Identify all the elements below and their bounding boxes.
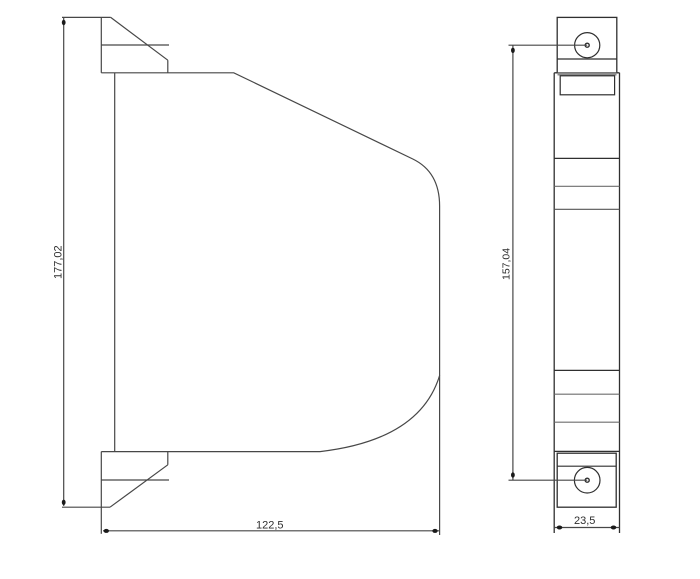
svg-text:157,04: 157,04 xyxy=(501,248,513,280)
svg-text:23,5: 23,5 xyxy=(574,515,595,527)
svg-text:177,02: 177,02 xyxy=(53,245,65,279)
svg-text:122,5: 122,5 xyxy=(256,520,284,532)
